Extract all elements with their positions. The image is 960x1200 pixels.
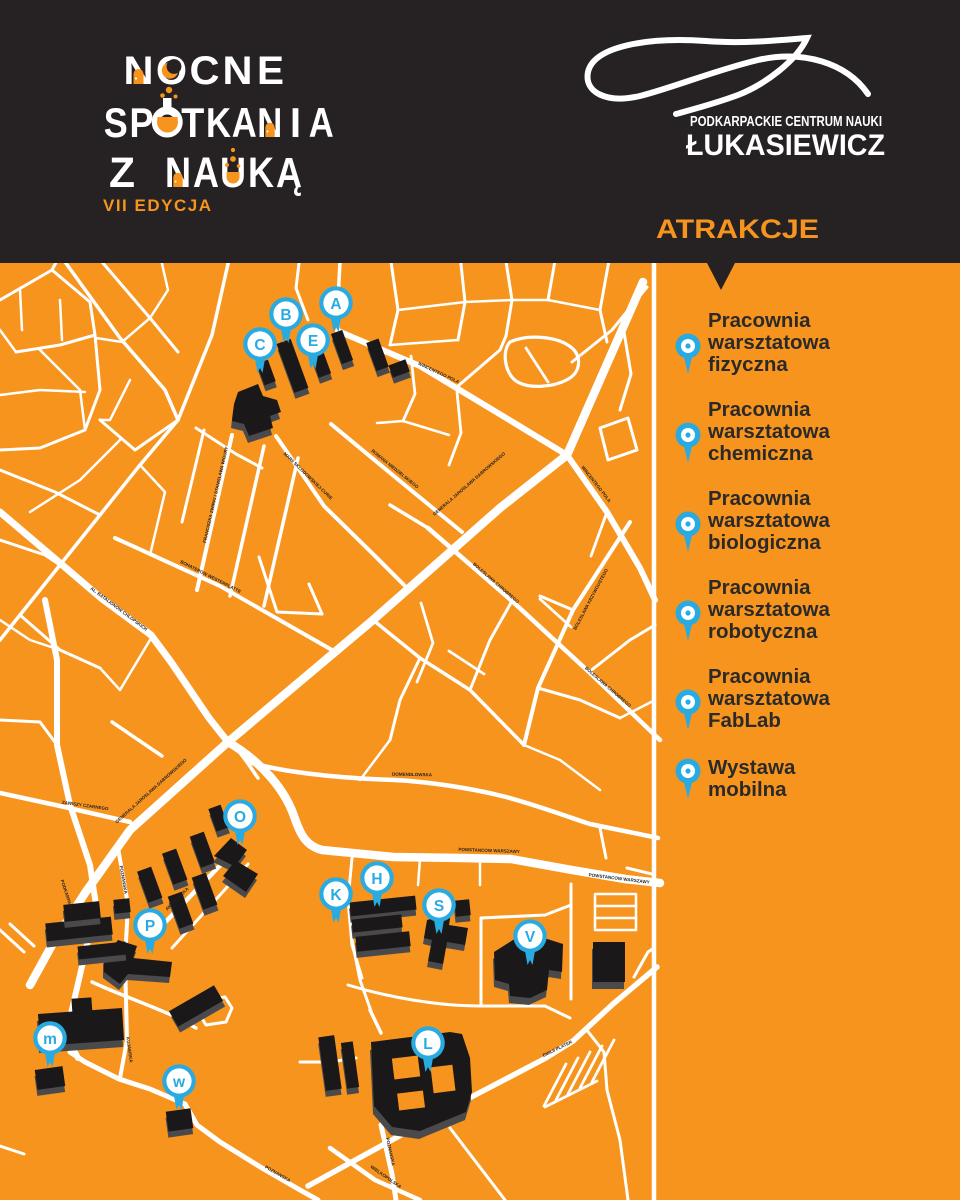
svg-text:A: A <box>193 149 219 197</box>
svg-text:Pracownia: Pracownia <box>708 665 811 688</box>
svg-text:PODKARPACKIE CENTRUM NAUKI: PODKARPACKIE CENTRUM NAUKI <box>690 113 882 130</box>
svg-text:Pracownia: Pracownia <box>708 576 811 599</box>
svg-text:I: I <box>290 99 301 146</box>
svg-text:ŁUKASIEWICZ: ŁUKASIEWICZ <box>686 129 885 162</box>
svg-text:K: K <box>248 149 274 197</box>
svg-text:V: V <box>525 929 536 946</box>
svg-text:S: S <box>104 99 128 146</box>
svg-text:K: K <box>206 99 231 146</box>
svg-text:warsztatowa: warsztatowa <box>707 687 830 710</box>
svg-text:A: A <box>309 99 334 146</box>
svg-text:S: S <box>434 898 444 915</box>
svg-text:FabLab: FabLab <box>708 709 781 732</box>
svg-text:DOMENDLOWSKA: DOMENDLOWSKA <box>392 772 433 778</box>
svg-text:Wystawa: Wystawa <box>708 756 796 779</box>
svg-text:N: N <box>257 99 282 146</box>
svg-text:robotyczna: robotyczna <box>708 620 818 643</box>
svg-text:T: T <box>181 99 204 146</box>
svg-text:warsztatowa: warsztatowa <box>707 509 830 532</box>
svg-text:P: P <box>130 99 154 146</box>
svg-text:A: A <box>232 99 257 146</box>
svg-text:Pracownia: Pracownia <box>708 487 811 510</box>
svg-text:mobilna: mobilna <box>708 778 787 801</box>
svg-text:Pracownia: Pracownia <box>708 398 811 421</box>
svg-text:Pracownia: Pracownia <box>708 309 811 332</box>
svg-text:E: E <box>257 49 284 93</box>
svg-text:biologiczna: biologiczna <box>708 531 821 554</box>
svg-text:A: A <box>330 296 341 313</box>
svg-text:B: B <box>280 307 291 324</box>
svg-text:warsztatowa: warsztatowa <box>707 331 830 354</box>
svg-text:ATRAKCJE: ATRAKCJE <box>656 214 819 244</box>
svg-text:N: N <box>223 49 253 93</box>
svg-text:L: L <box>423 1036 432 1053</box>
svg-text:VII EDYCJA: VII EDYCJA <box>103 196 212 215</box>
svg-text:P: P <box>145 918 155 935</box>
svg-text:chemiczna: chemiczna <box>708 442 813 465</box>
svg-text:H: H <box>371 871 382 888</box>
svg-text:Z: Z <box>109 149 135 197</box>
svg-text:fizyczna: fizyczna <box>708 353 788 376</box>
svg-text:C: C <box>254 337 265 354</box>
svg-text:Ą: Ą <box>276 149 302 197</box>
svg-text:m: m <box>43 1031 57 1048</box>
svg-text:O: O <box>234 809 246 826</box>
svg-text:C: C <box>190 49 220 93</box>
svg-text:warsztatowa: warsztatowa <box>707 420 830 443</box>
svg-text:E: E <box>308 333 318 350</box>
svg-text:K: K <box>330 887 342 904</box>
svg-text:warsztatowa: warsztatowa <box>707 598 830 621</box>
svg-text:w: w <box>172 1074 186 1091</box>
